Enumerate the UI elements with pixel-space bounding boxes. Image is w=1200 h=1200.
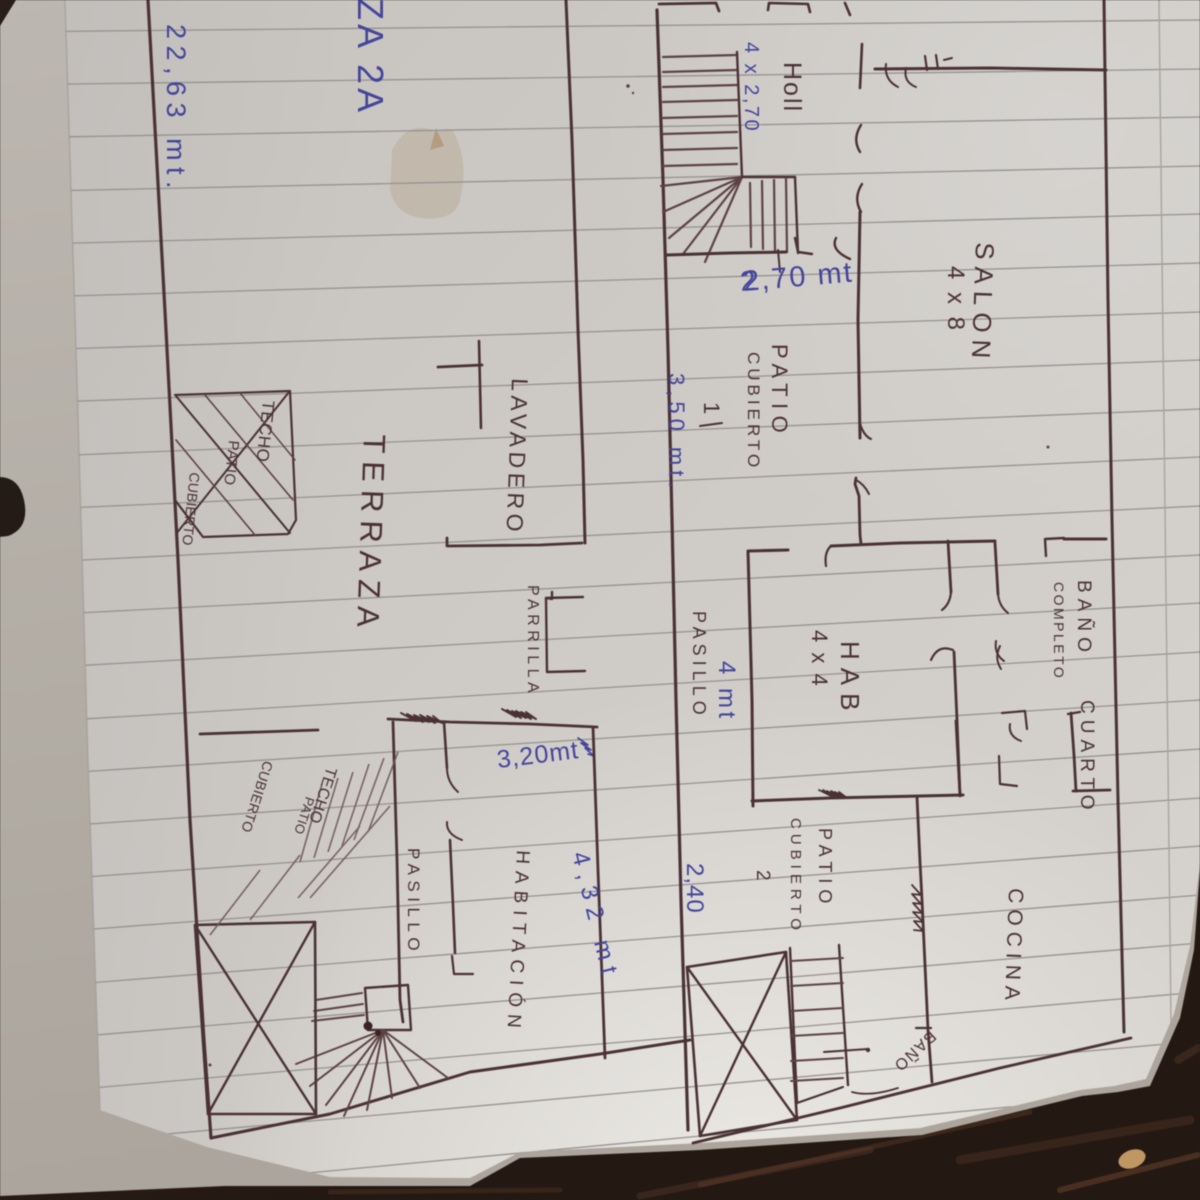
svg-text:2: 2 (752, 870, 773, 883)
svg-text:COMPLETO: COMPLETO (1051, 582, 1067, 680)
svg-text:LAVADERO: LAVADERO (501, 378, 532, 537)
svg-text:22,63 mt.: 22,63 mt. (161, 24, 191, 195)
svg-text:Holl: Holl (778, 62, 806, 113)
svg-text:PATIO: PATIO (815, 828, 835, 909)
svg-text:PASILLO: PASILLO (404, 848, 423, 956)
svg-text:2: 2 (739, 265, 758, 297)
svg-text:COCINA: COCINA (1000, 888, 1027, 1006)
svg-text:4 mt: 4 mt (713, 661, 740, 722)
svg-text:BAÑO: BAÑO (1073, 580, 1095, 658)
svg-text:1: 1 (699, 402, 724, 416)
svg-text:PASILLO: PASILLO (689, 611, 709, 720)
svg-text:PARRILLA: PARRILLA (524, 585, 541, 697)
svg-text:2,40: 2,40 (681, 863, 708, 914)
svg-text:CUBIERTO: CUBIERTO (744, 352, 763, 471)
svg-text:CUBIERTO: CUBIERTO (787, 818, 804, 935)
svg-text:PATIO: PATIO (767, 344, 792, 439)
svg-text:AZA 2A: AZA 2A (350, 0, 391, 116)
svg-text:TERRAZA: TERRAZA (350, 434, 392, 636)
svg-text:4 x 4: 4 x 4 (807, 630, 832, 688)
svg-text:CUARTO: CUARTO (1076, 700, 1097, 816)
svg-text:HAB: HAB (835, 641, 865, 718)
svg-text:3,50 mt.: 3,50 mt. (664, 373, 689, 492)
svg-text:4 x 8: 4 x 8 (942, 266, 969, 333)
svg-text:4 x 2,70: 4 x 2,70 (740, 42, 762, 133)
svg-text:SALON: SALON (966, 242, 1000, 366)
